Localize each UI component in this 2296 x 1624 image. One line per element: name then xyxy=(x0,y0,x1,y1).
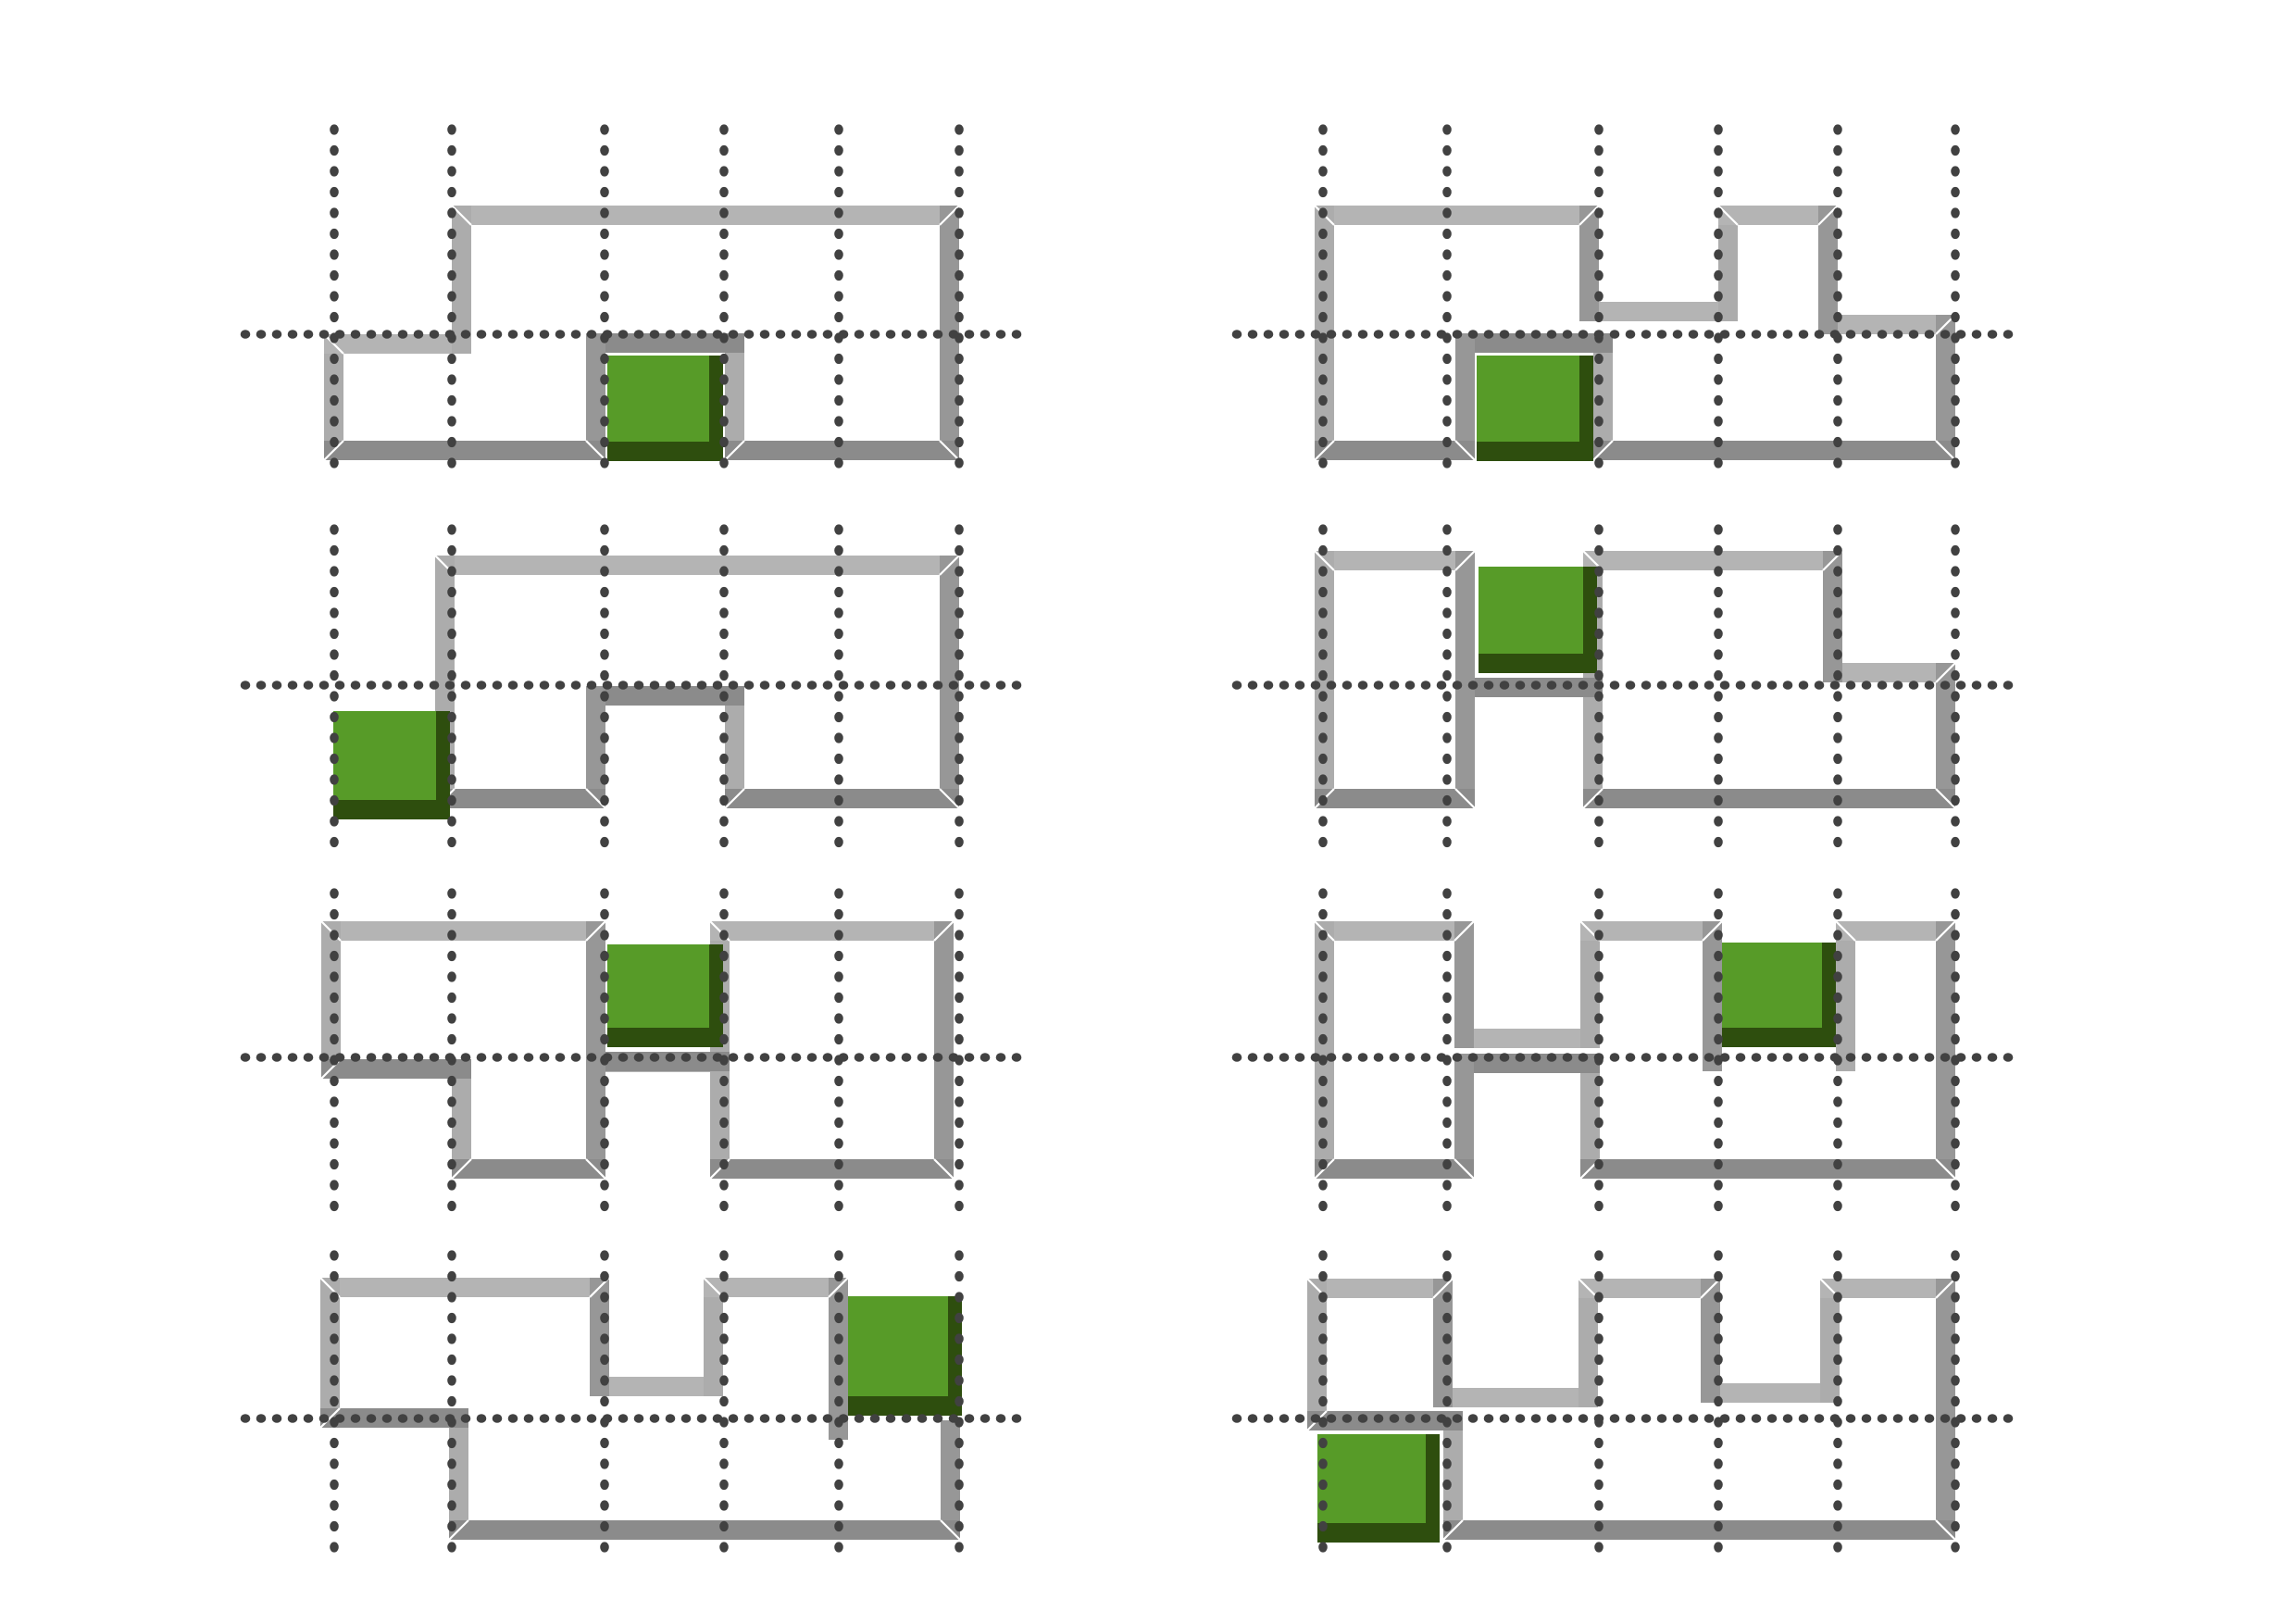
green-square xyxy=(333,711,450,819)
green-square xyxy=(1722,943,1836,1047)
green-square xyxy=(607,356,723,461)
green-square xyxy=(1317,1434,1440,1543)
figure-canvas xyxy=(0,0,2296,1624)
green-square xyxy=(1479,567,1597,673)
green-square xyxy=(848,1296,962,1416)
polyomino-grid-figure xyxy=(0,0,2296,1624)
green-square xyxy=(607,944,723,1047)
green-square xyxy=(1477,356,1593,461)
